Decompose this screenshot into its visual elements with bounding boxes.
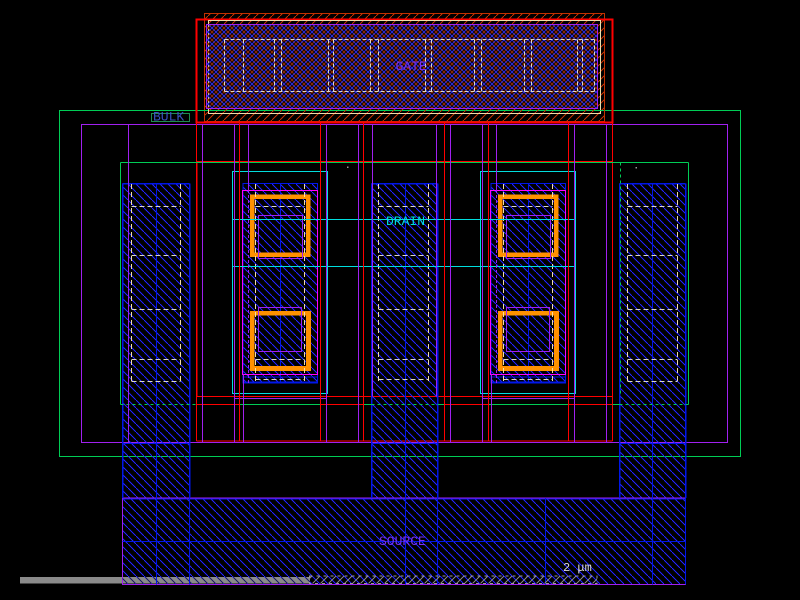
svg-text:GATE: GATE [396, 59, 427, 74]
svg-text:BULK: BULK [153, 110, 184, 125]
svg-text:SOURCE: SOURCE [379, 534, 426, 549]
svg-text:2 μm: 2 μm [563, 561, 592, 575]
svg-text:DRAIN: DRAIN [386, 214, 425, 229]
